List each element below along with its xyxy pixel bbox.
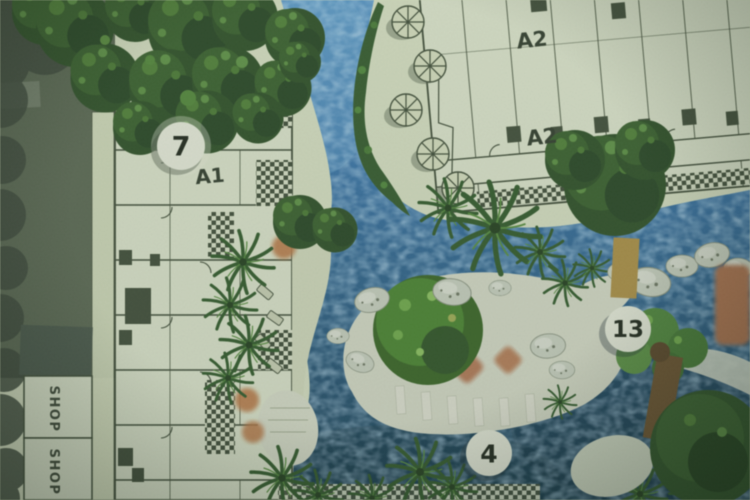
site-plan-canvas: 7 13 4 A1 A2 A2 SHOP SHOP (0, 0, 750, 500)
site-plan-photo: 7 13 4 A1 A2 A2 SHOP SHOP (0, 0, 750, 500)
grain-overlay (0, 0, 750, 500)
